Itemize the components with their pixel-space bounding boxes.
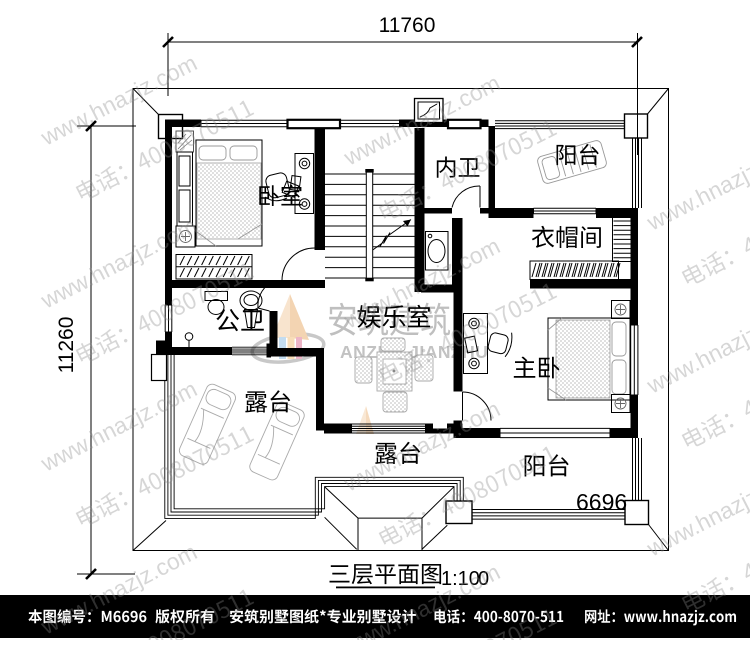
svg-text:11760: 11760: [379, 14, 436, 37]
svg-text:6696: 6696: [576, 489, 627, 515]
svg-text:11260: 11260: [55, 317, 78, 374]
